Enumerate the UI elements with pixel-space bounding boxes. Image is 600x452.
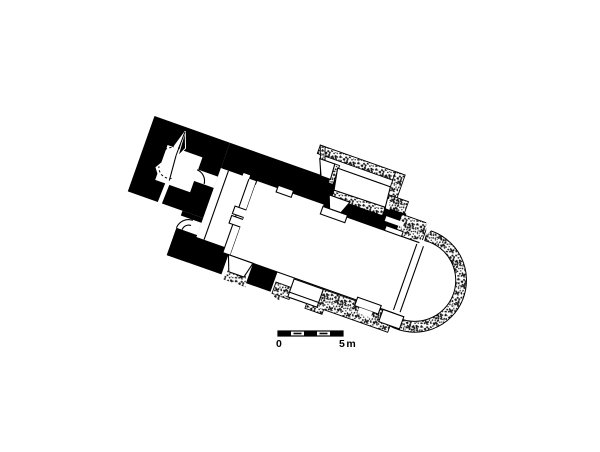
svg-text:0: 0 xyxy=(276,338,282,350)
svg-text:5m: 5m xyxy=(339,338,356,350)
